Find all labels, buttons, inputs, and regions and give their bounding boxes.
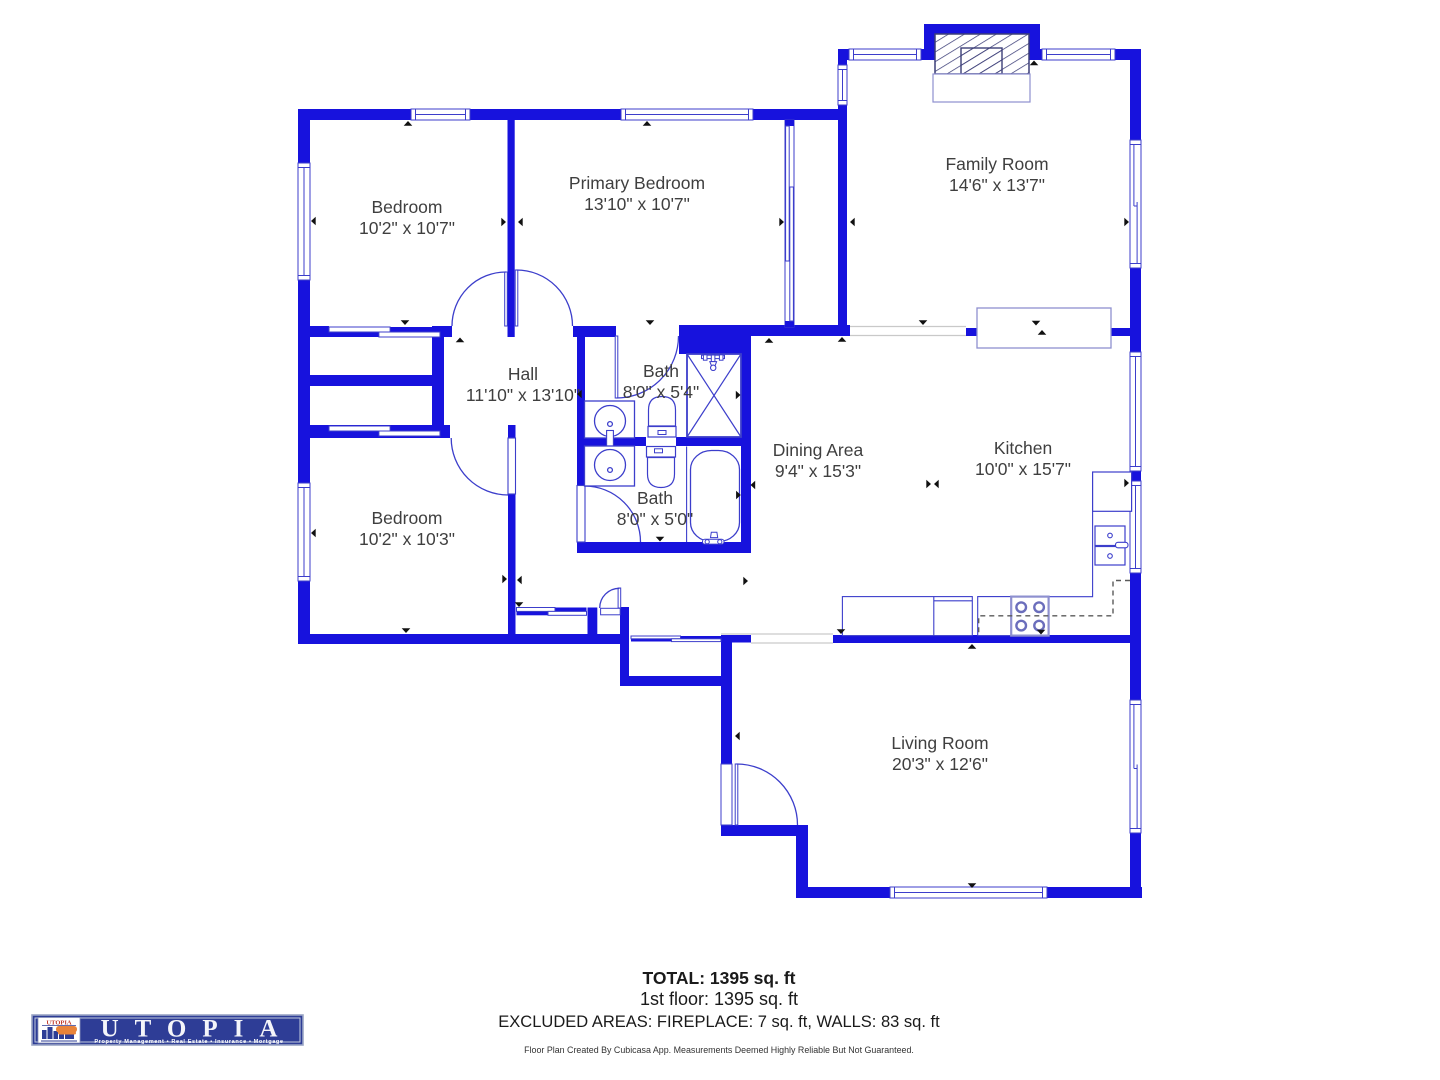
svg-text:Family Room: Family Room [945, 154, 1048, 174]
svg-text:10'2" x 10'3": 10'2" x 10'3" [359, 529, 455, 549]
svg-text:Hall: Hall [508, 364, 538, 384]
svg-text:Bath: Bath [643, 361, 679, 381]
svg-text:Property Management • Real Est: Property Management • Real Estate • Insu… [94, 1039, 283, 1045]
svg-text:8'0" x 5'4": 8'0" x 5'4" [623, 382, 700, 402]
svg-text:10'2" x 10'7": 10'2" x 10'7" [359, 218, 455, 238]
svg-text:8'0" x 5'0": 8'0" x 5'0" [617, 509, 694, 529]
svg-text:Dining Area: Dining Area [773, 440, 864, 460]
svg-text:Bedroom: Bedroom [371, 508, 442, 528]
svg-text:9'4" x 15'3": 9'4" x 15'3" [775, 461, 861, 481]
svg-text:Floor Plan Created By Cubicasa: Floor Plan Created By Cubicasa App. Meas… [524, 1045, 914, 1055]
svg-text:1st floor: 1395 sq. ft: 1st floor: 1395 sq. ft [640, 989, 798, 1009]
svg-text:Kitchen: Kitchen [994, 438, 1052, 458]
svg-text:EXCLUDED AREAS: FIREPLACE: 7 s: EXCLUDED AREAS: FIREPLACE: 7 sq. ft, WAL… [498, 1013, 940, 1031]
svg-text:11'10" x 13'10": 11'10" x 13'10" [466, 385, 580, 405]
svg-text:Bedroom: Bedroom [371, 197, 442, 217]
svg-text:TOTAL: 1395 sq. ft: TOTAL: 1395 sq. ft [643, 968, 796, 988]
svg-text:14'6" x 13'7": 14'6" x 13'7" [949, 175, 1045, 195]
svg-text:Bath: Bath [637, 488, 673, 508]
svg-text:20'3" x 12'6": 20'3" x 12'6" [892, 754, 988, 774]
svg-text:10'0" x 15'7": 10'0" x 15'7" [975, 459, 1071, 479]
svg-text:Living Room: Living Room [891, 733, 988, 753]
svg-text:13'10" x 10'7": 13'10" x 10'7" [584, 194, 690, 214]
svg-text:Primary Bedroom: Primary Bedroom [569, 173, 705, 193]
